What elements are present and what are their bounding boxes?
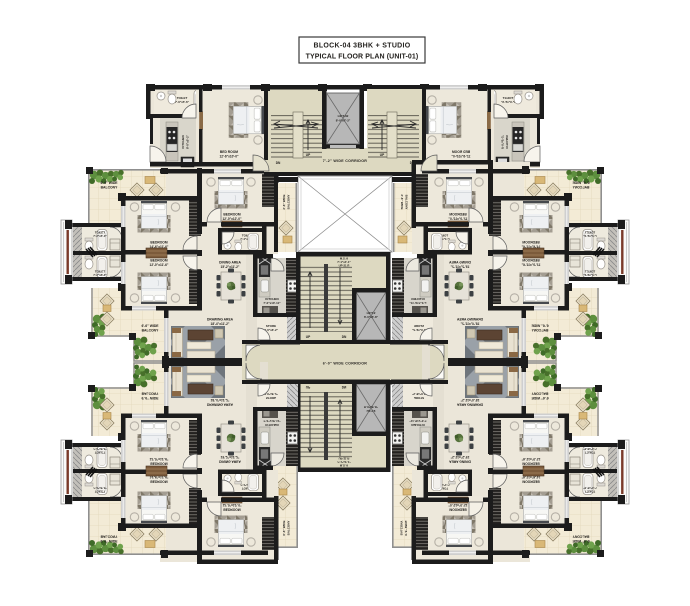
svg-text:2'-6" WIDE: 2'-6" WIDE bbox=[400, 194, 404, 209]
svg-text:8'-0"x5'-2": 8'-0"x5'-2" bbox=[186, 134, 190, 149]
svg-text:BLOCK-04 3BHK + STUDIO: BLOCK-04 3BHK + STUDIO bbox=[313, 43, 410, 50]
svg-text:6'-6" WIDE: 6'-6" WIDE bbox=[141, 324, 159, 328]
svg-text:BALCONY: BALCONY bbox=[287, 521, 291, 536]
svg-text:6'-0" WIDE CORRIDOR: 6'-0" WIDE CORRIDOR bbox=[323, 362, 368, 366]
svg-text:TYPICAL FLOOR PLAN (UNIT-01): TYPICAL FLOOR PLAN (UNIT-01) bbox=[306, 54, 419, 61]
svg-text:7'-6"x5'-6": 7'-6"x5'-6" bbox=[175, 100, 190, 104]
svg-text:12'-0"x11'-6": 12'-0"x11'-6" bbox=[150, 263, 169, 267]
svg-text:KITCHEN: KITCHEN bbox=[181, 135, 185, 148]
svg-text:DN: DN bbox=[276, 161, 281, 165]
svg-text:15'-2"x11'-2": 15'-2"x11'-2" bbox=[221, 265, 240, 269]
svg-text:12'-6"x10'-0": 12'-6"x10'-0" bbox=[219, 154, 239, 158]
svg-text:BALCONY: BALCONY bbox=[142, 328, 160, 332]
svg-text:BED ROOM: BED ROOM bbox=[220, 150, 238, 154]
svg-text:DN: DN bbox=[342, 335, 347, 339]
svg-text:2'-6" WIDE: 2'-6" WIDE bbox=[282, 194, 286, 209]
svg-text:6'-6" WIDE: 6'-6" WIDE bbox=[100, 181, 118, 185]
svg-text:12'-0"x12'-0": 12'-0"x12'-0" bbox=[222, 217, 242, 221]
svg-text:BALCONY: BALCONY bbox=[101, 185, 119, 189]
svg-text:BALCONY: BALCONY bbox=[405, 195, 409, 210]
svg-text:6'-6" WIDE: 6'-6" WIDE bbox=[282, 520, 286, 535]
svg-text:BALCONY: BALCONY bbox=[287, 195, 291, 210]
svg-text:7'-2" WIDE CORRIDOR: 7'-2" WIDE CORRIDOR bbox=[323, 159, 368, 163]
svg-text:7'-2"x5'-0": 7'-2"x5'-0" bbox=[93, 234, 107, 238]
svg-text:8'-0"x7'-2": 8'-0"x7'-2" bbox=[336, 118, 351, 122]
svg-text:7'-2"x5'-0": 7'-2"x5'-0" bbox=[93, 273, 107, 277]
svg-text:18'-4"x11'-2": 18'-4"x11'-2" bbox=[211, 322, 230, 326]
svg-text:7'-0"x10'-11": 7'-0"x10'-11" bbox=[263, 301, 281, 305]
svg-text:6'-0"x5'-8": 6'-0"x5'-8" bbox=[364, 315, 379, 319]
svg-text:LIFT-02: LIFT-02 bbox=[338, 114, 349, 118]
svg-text:UP-21 R: UP-21 R bbox=[339, 264, 350, 268]
